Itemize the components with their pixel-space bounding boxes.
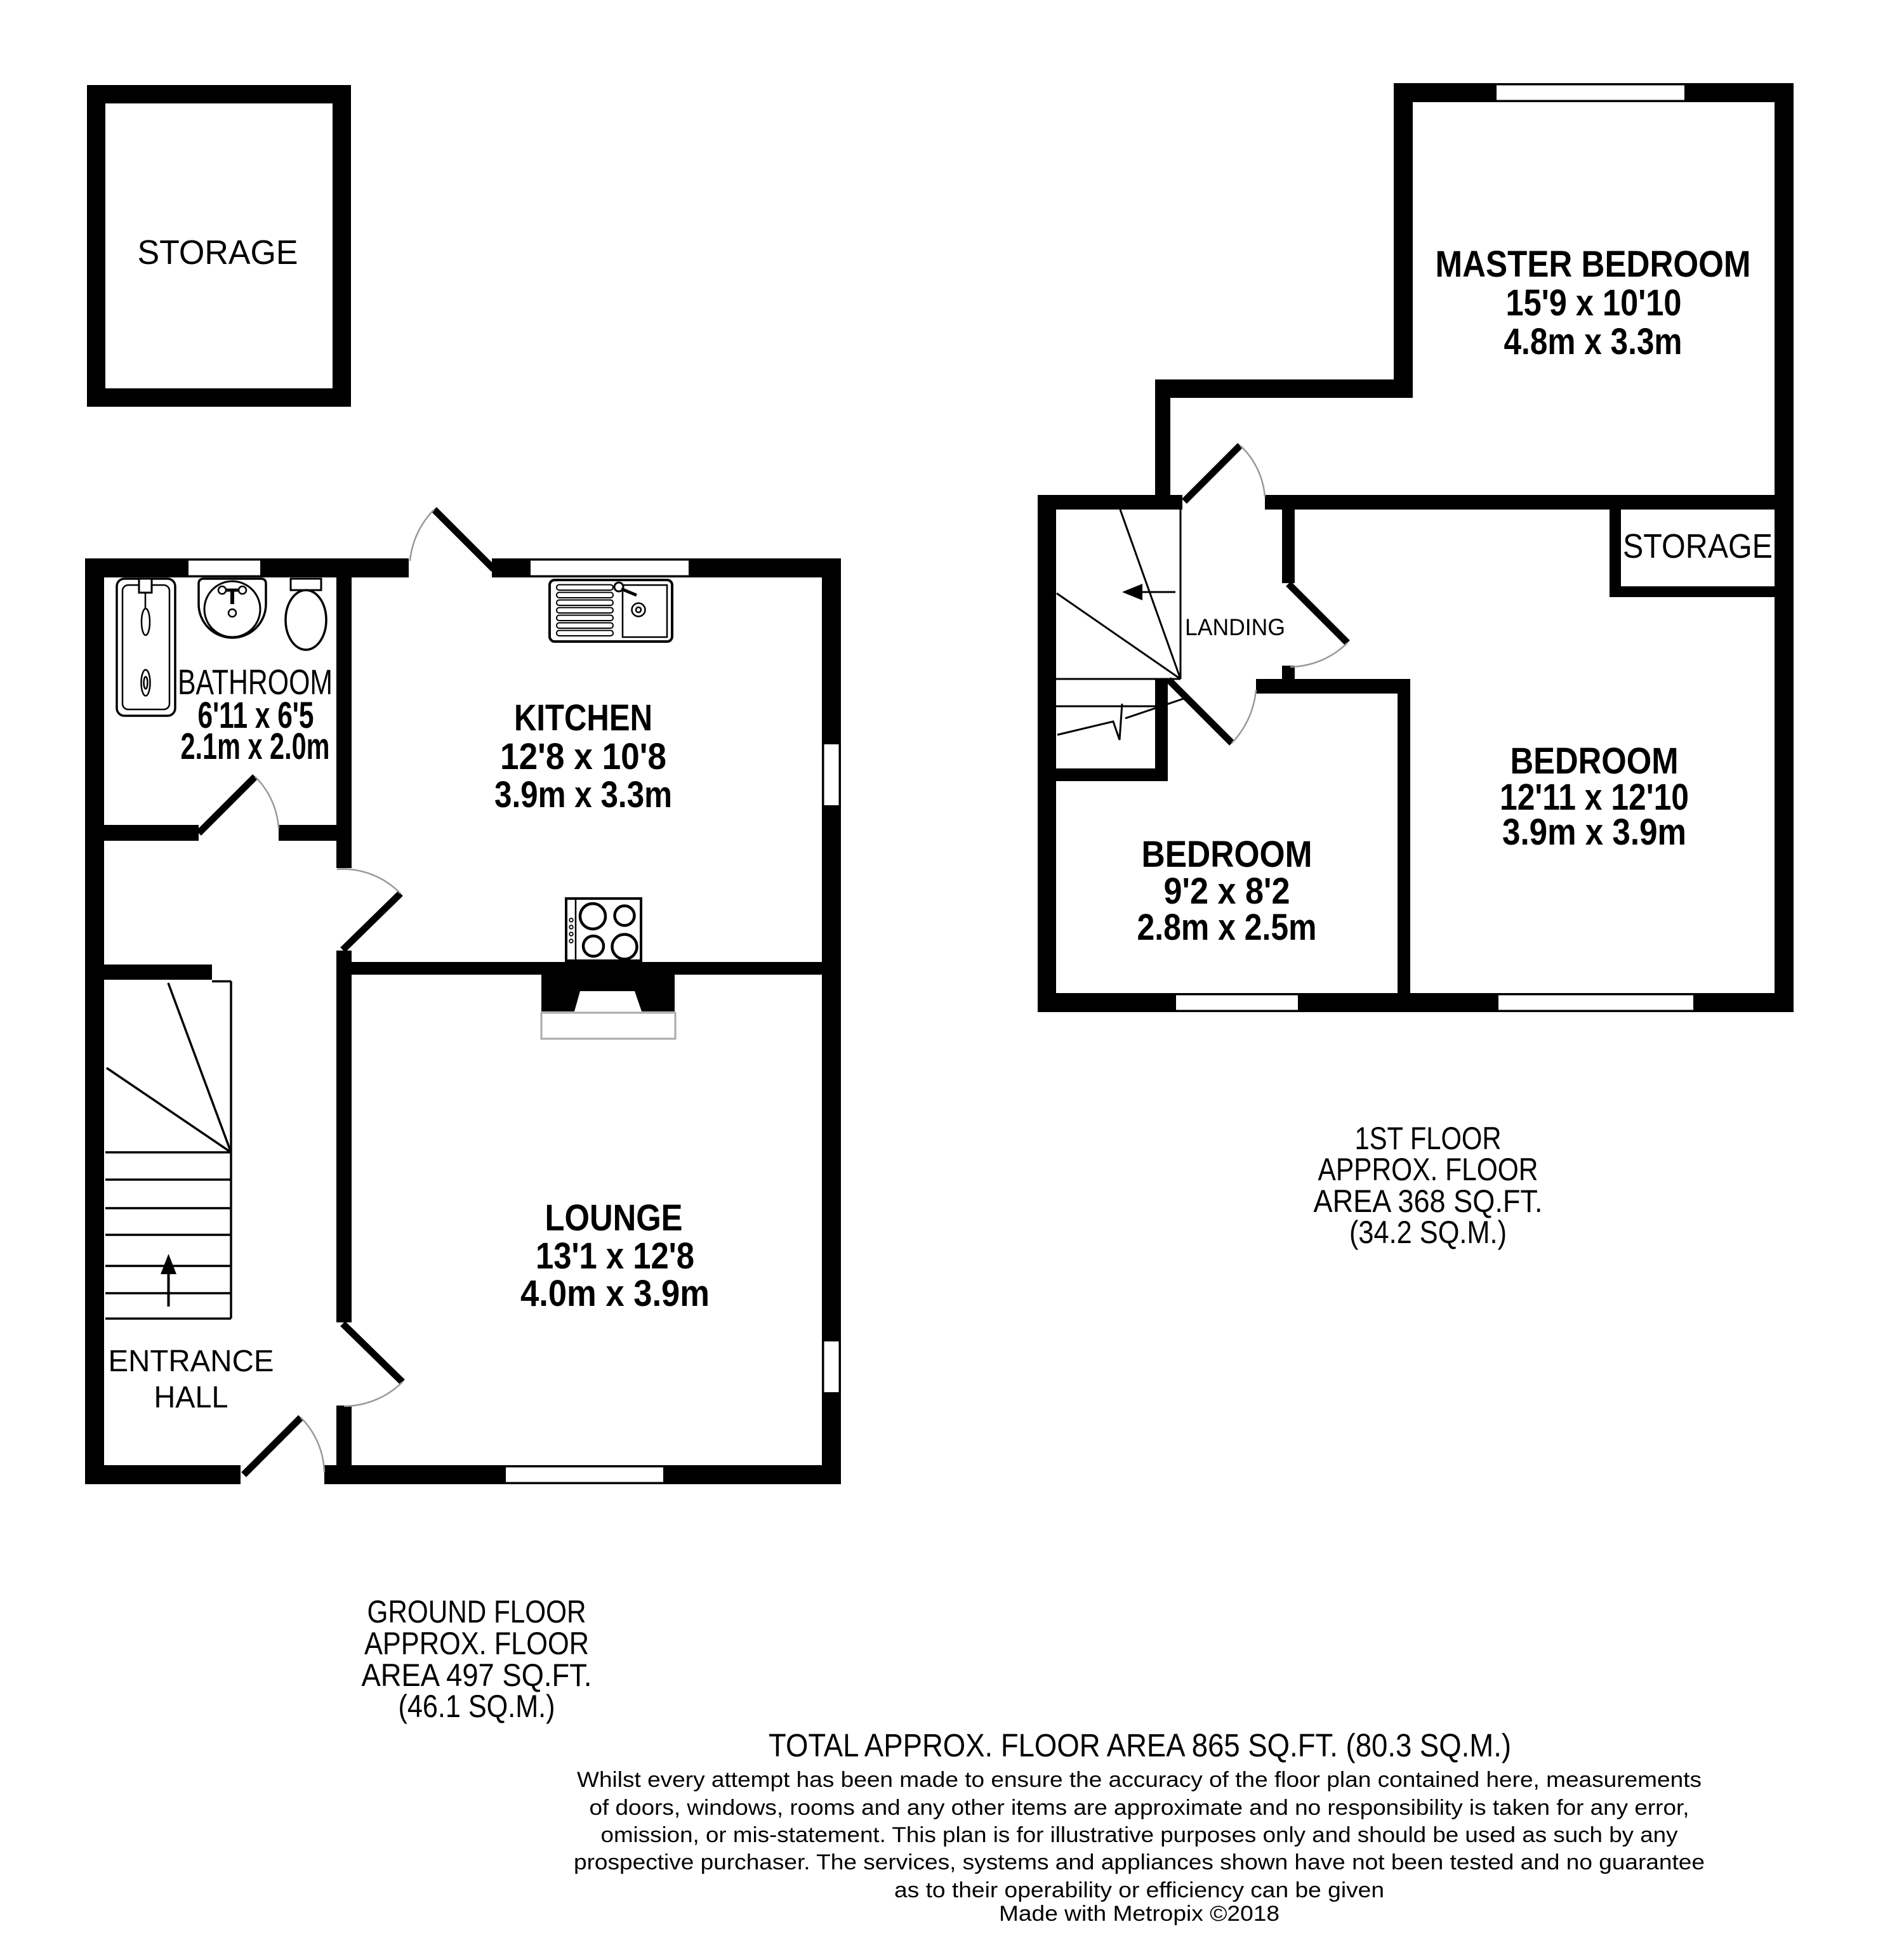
svg-text:(46.1 SQ.M.): (46.1 SQ.M.): [399, 1689, 555, 1724]
svg-text:2.1m x 2.0m: 2.1m x 2.0m: [181, 726, 330, 767]
svg-text:9'2 x 8'2: 9'2 x 8'2: [1164, 871, 1290, 912]
svg-text:AREA 497 SQ.FT.: AREA 497 SQ.FT.: [362, 1657, 592, 1693]
svg-text:STORAGE: STORAGE: [138, 234, 298, 272]
svg-text:2.8m x 2.5m: 2.8m x 2.5m: [1137, 907, 1317, 948]
svg-text:of doors, windows, rooms and a: of doors, windows, rooms and any other i…: [590, 1796, 1689, 1820]
svg-text:HALL: HALL: [154, 1381, 228, 1414]
svg-text:3.9m x 3.9m: 3.9m x 3.9m: [1502, 812, 1686, 853]
svg-text:4.8m x 3.3m: 4.8m x 3.3m: [1504, 321, 1683, 362]
svg-text:prospective purchaser. The ser: prospective purchaser. The services, sys…: [574, 1850, 1705, 1874]
svg-text:13'1 x 12'8: 13'1 x 12'8: [536, 1235, 694, 1277]
svg-text:LANDING: LANDING: [1185, 614, 1285, 640]
svg-text:(34.2 SQ.M.): (34.2 SQ.M.): [1349, 1215, 1507, 1250]
svg-text:AREA 368 SQ.FT.: AREA 368 SQ.FT.: [1314, 1183, 1543, 1219]
svg-text:3.9m x 3.3m: 3.9m x 3.3m: [494, 774, 672, 815]
svg-text:omission, or mis-statement. Th: omission, or mis-statement. This plan is…: [601, 1823, 1678, 1847]
svg-text:GROUND FLOOR: GROUND FLOOR: [367, 1594, 586, 1630]
svg-text:Made with Metropix ©2018: Made with Metropix ©2018: [999, 1902, 1279, 1926]
svg-text:APPROX. FLOOR: APPROX. FLOOR: [1318, 1152, 1538, 1187]
svg-text:TOTAL APPROX. FLOOR AREA 865 S: TOTAL APPROX. FLOOR AREA 865 SQ.FT. (80.…: [769, 1727, 1511, 1763]
svg-text:KITCHEN: KITCHEN: [514, 697, 652, 739]
svg-text:4.0m x 3.9m: 4.0m x 3.9m: [520, 1273, 710, 1314]
svg-text:ENTRANCE: ENTRANCE: [109, 1345, 274, 1378]
svg-text:12'8 x 10'8: 12'8 x 10'8: [500, 736, 666, 777]
svg-text:MASTER BEDROOM: MASTER BEDROOM: [1436, 244, 1751, 285]
svg-text:LOUNGE: LOUNGE: [545, 1197, 683, 1239]
svg-text:BEDROOM: BEDROOM: [1142, 834, 1312, 875]
svg-text:APPROX. FLOOR: APPROX. FLOOR: [364, 1626, 589, 1661]
svg-text:as to their operability or eff: as to their operability or efficiency ca…: [894, 1878, 1384, 1902]
svg-text:BEDROOM: BEDROOM: [1511, 741, 1679, 782]
svg-text:Whilst every attempt has been: Whilst every attempt has been made to en…: [577, 1768, 1702, 1792]
svg-text:15'9 x 10'10: 15'9 x 10'10: [1506, 282, 1682, 324]
svg-text:1ST FLOOR: 1ST FLOOR: [1355, 1121, 1502, 1156]
svg-text:STORAGE: STORAGE: [1623, 527, 1773, 565]
